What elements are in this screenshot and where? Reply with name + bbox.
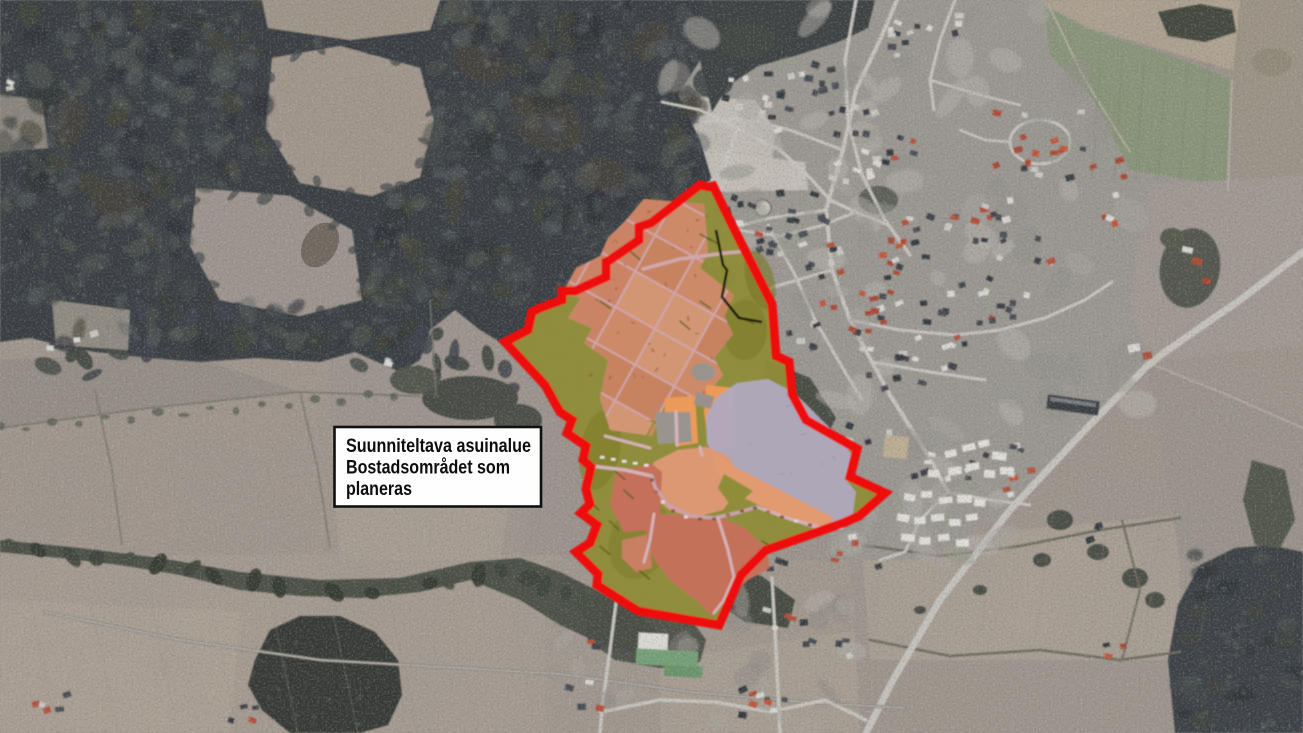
svg-text:Bostadsområdet som: Bostadsområdet som: [346, 458, 510, 479]
svg-text:planeras: planeras: [346, 479, 412, 500]
svg-text:Suunniteltava asuinalue: Suunniteltava asuinalue: [346, 436, 531, 457]
